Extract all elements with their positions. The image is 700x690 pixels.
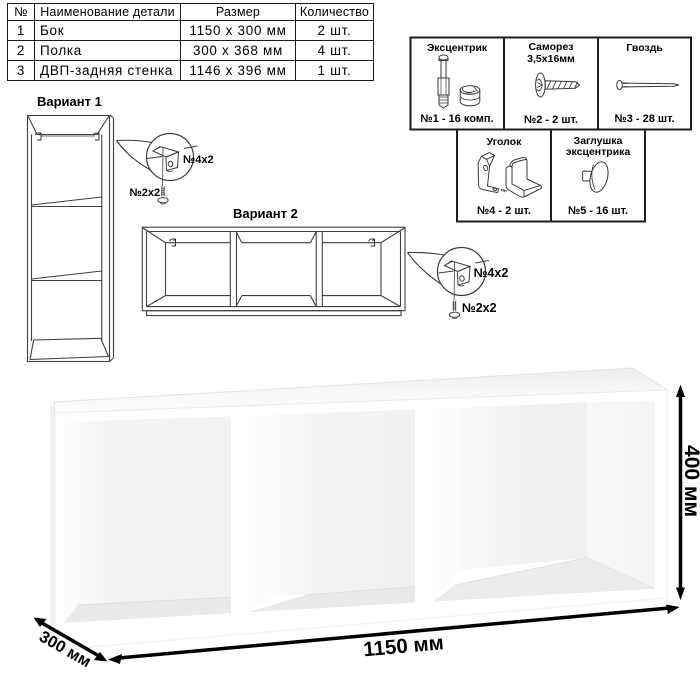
svg-text:400 мм: 400 мм (680, 445, 700, 517)
